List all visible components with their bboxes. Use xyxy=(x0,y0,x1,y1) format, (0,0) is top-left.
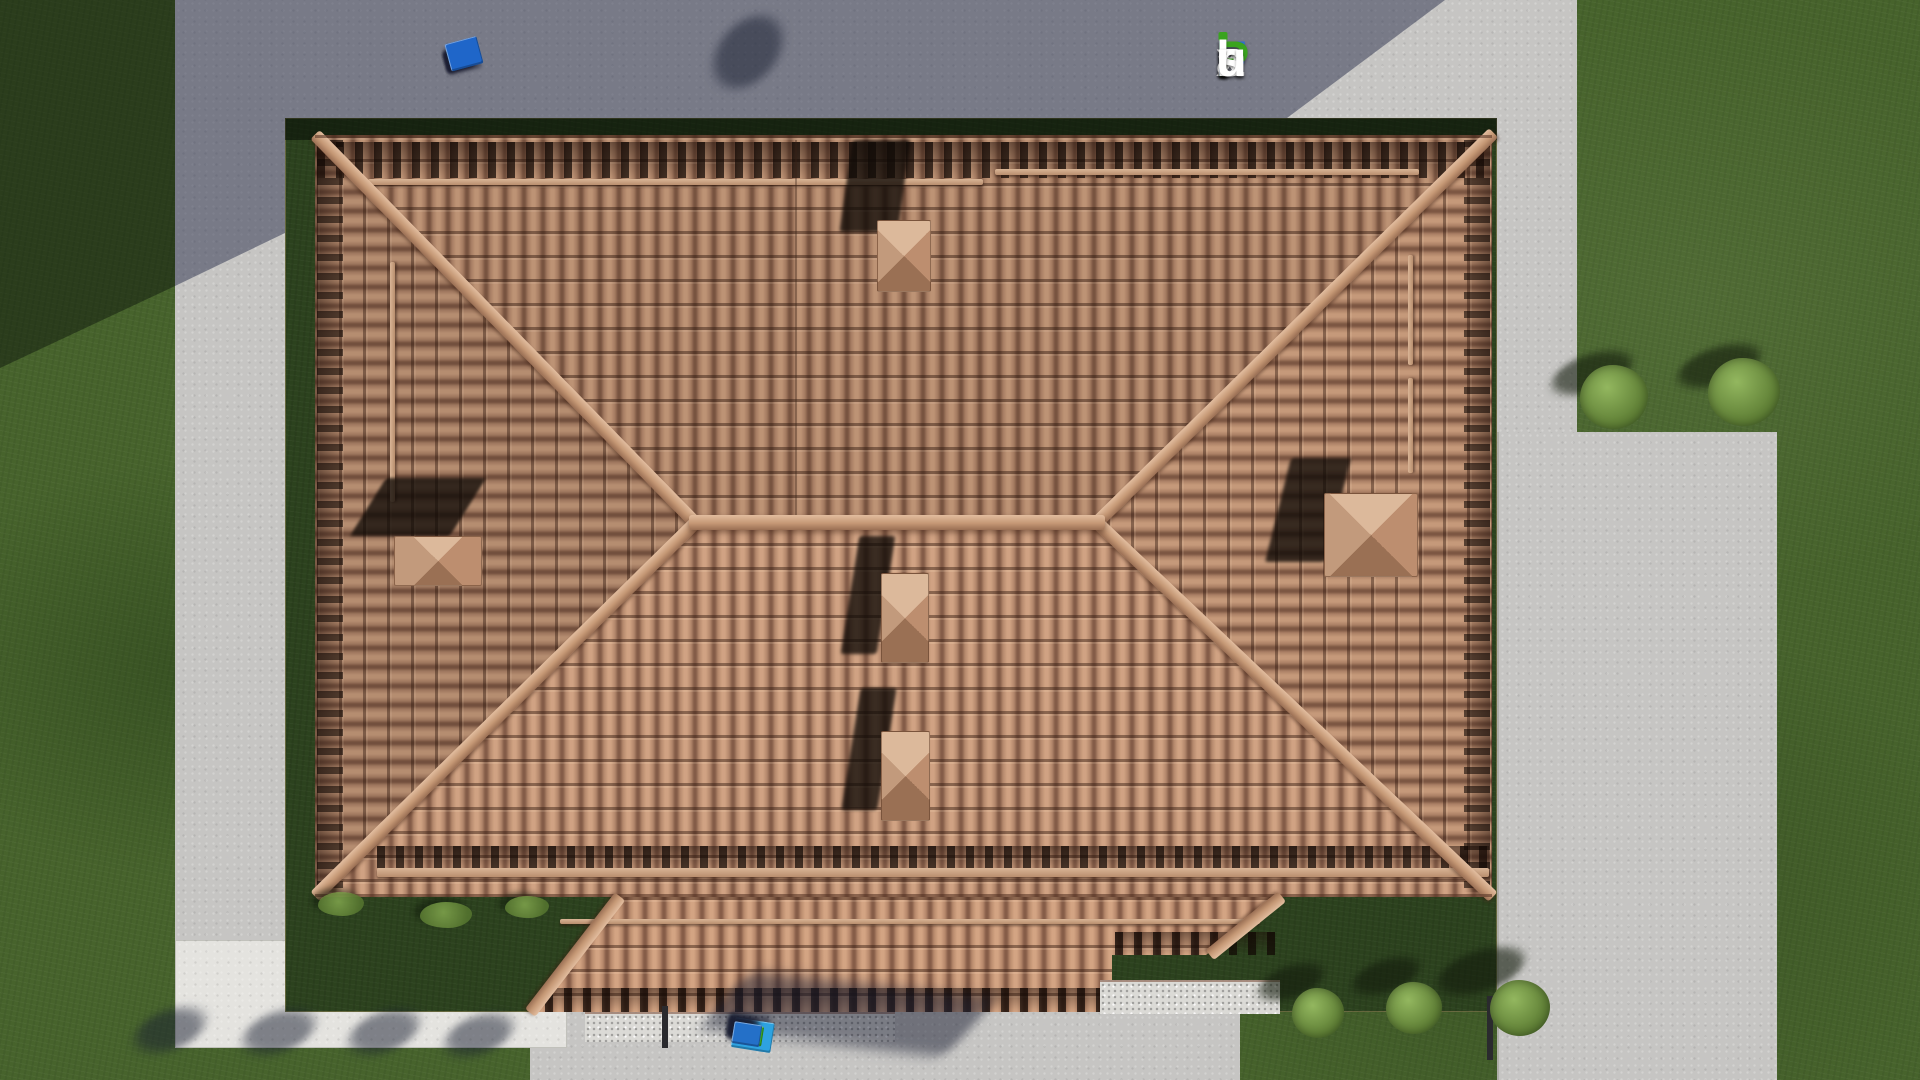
gravel-strip-right xyxy=(1100,980,1280,1014)
roof-seam-north xyxy=(795,140,797,520)
porch-eave-shadow-left xyxy=(545,988,1105,1012)
pavement-left-strip xyxy=(175,0,285,1012)
watermark-letter: u xyxy=(1216,30,1248,88)
downspout-left xyxy=(662,1006,668,1048)
tuft-1 xyxy=(318,892,364,916)
eave-shadow-south xyxy=(377,846,1489,868)
shrub-br-1 xyxy=(1292,988,1344,1038)
gutter-bar-south xyxy=(377,868,1489,877)
tuft-3 xyxy=(505,896,549,918)
snow-guard-west xyxy=(390,262,395,502)
scene: FıxPlans.ru xyxy=(0,0,1920,1080)
chimney-west xyxy=(394,536,482,586)
shrub-right-1 xyxy=(1580,365,1648,429)
pavement-right-patio xyxy=(1497,432,1777,1080)
shrub-right-2 xyxy=(1708,358,1780,426)
chimney-south-1 xyxy=(881,573,929,663)
shrub-br-2 xyxy=(1386,982,1442,1034)
snow-guard-east-lower xyxy=(1408,378,1413,473)
marker-block xyxy=(731,1021,762,1047)
central-ridge-cap xyxy=(689,515,1105,530)
shrub-br-3 xyxy=(1490,980,1550,1036)
porch-eave-shadow-right xyxy=(1115,932,1275,955)
roof-fascia-top xyxy=(315,135,1492,138)
snow-guard-north-right xyxy=(995,169,1419,175)
chimney-south-2 xyxy=(881,731,930,821)
porch-snow-guard xyxy=(560,919,1260,924)
eave-shadow-east xyxy=(1464,140,1490,892)
snow-guard-east-upper xyxy=(1408,255,1413,365)
tuft-2 xyxy=(420,902,472,928)
eave-shadow-west xyxy=(317,140,343,892)
chimney-north xyxy=(877,220,931,292)
chimney-east xyxy=(1324,493,1418,577)
